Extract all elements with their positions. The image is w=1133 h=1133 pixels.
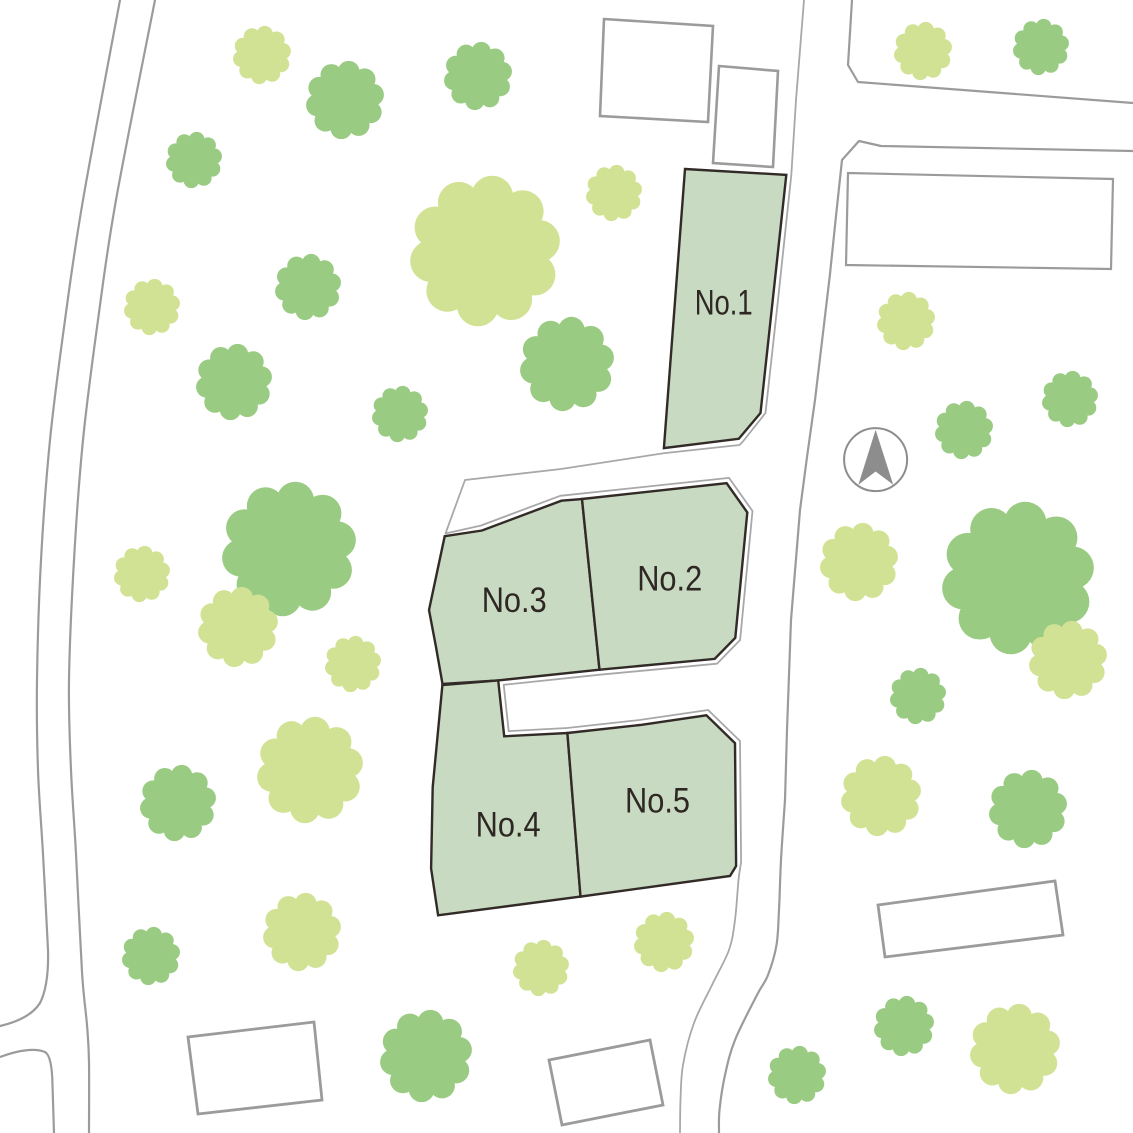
svg-text:No.1: No.1 <box>695 284 753 323</box>
svg-text:No.5: No.5 <box>625 782 690 821</box>
svg-text:No.2: No.2 <box>637 559 702 598</box>
svg-text:No.3: No.3 <box>482 581 547 620</box>
svg-text:No.4: No.4 <box>476 805 541 844</box>
